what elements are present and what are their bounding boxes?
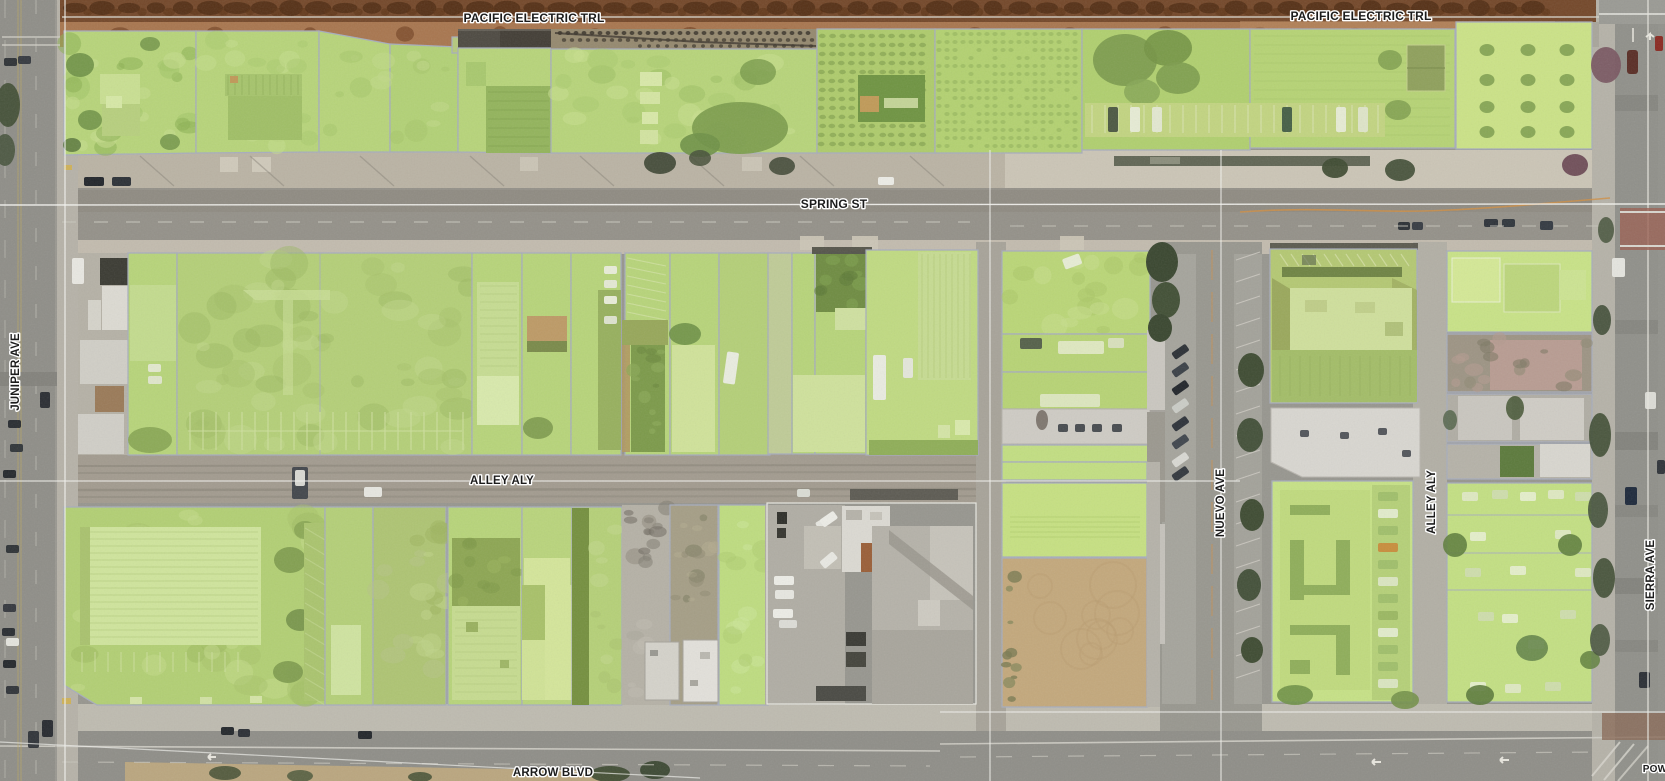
svg-text:ARROW BLVD: ARROW BLVD	[513, 767, 593, 779]
svg-text:ALLEY ALY: ALLEY ALY	[1426, 470, 1438, 534]
svg-text:PACIFIC ELECTRIC TRL: PACIFIC ELECTRIC TRL	[463, 11, 604, 25]
svg-text:JUNIPER AVE: JUNIPER AVE	[10, 333, 22, 411]
svg-text:SIERRA AVE: SIERRA AVE	[1645, 540, 1657, 611]
svg-text:NUEVO AVE: NUEVO AVE	[1215, 469, 1227, 537]
svg-text:PACIFIC ELECTRIC TRL: PACIFIC ELECTRIC TRL	[1290, 9, 1431, 23]
svg-text:SPRING ST: SPRING ST	[801, 197, 868, 211]
svg-text:POW: POW	[1643, 764, 1665, 775]
svg-text:ALLEY ALY: ALLEY ALY	[470, 475, 534, 487]
